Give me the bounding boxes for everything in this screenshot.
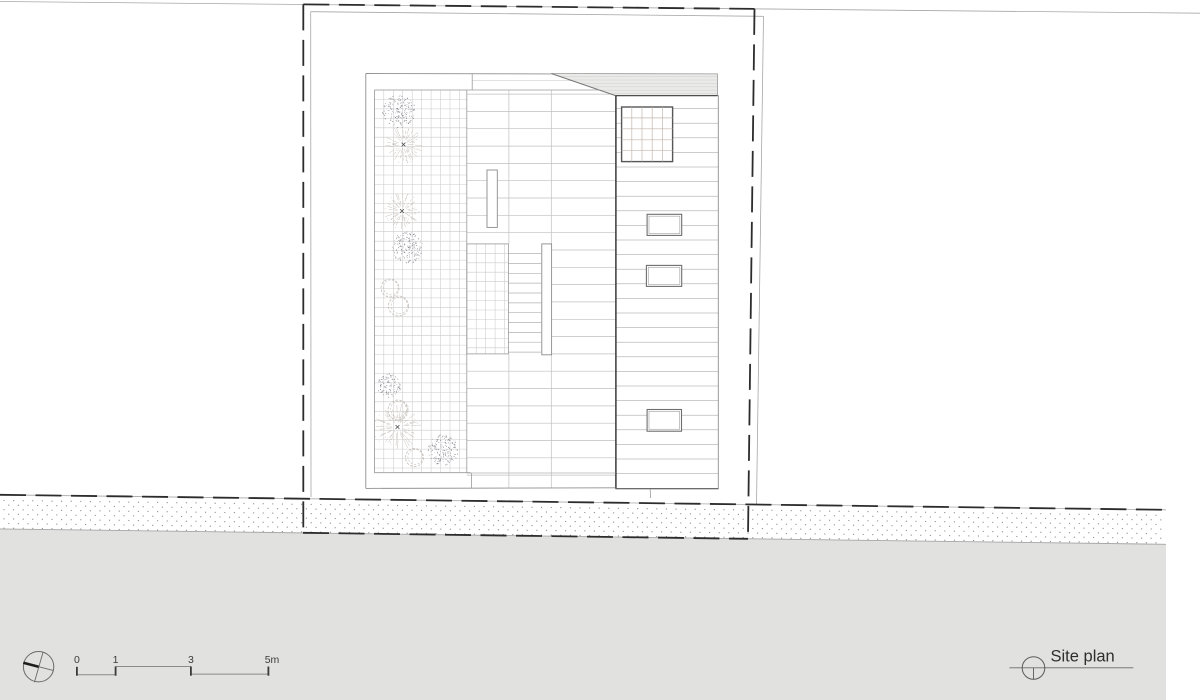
- svg-text:3: 3: [188, 654, 194, 666]
- svg-text:1: 1: [113, 654, 119, 666]
- svg-text:Site plan: Site plan: [1051, 648, 1115, 666]
- svg-text:0: 0: [74, 654, 80, 666]
- svg-text:5m: 5m: [265, 654, 280, 666]
